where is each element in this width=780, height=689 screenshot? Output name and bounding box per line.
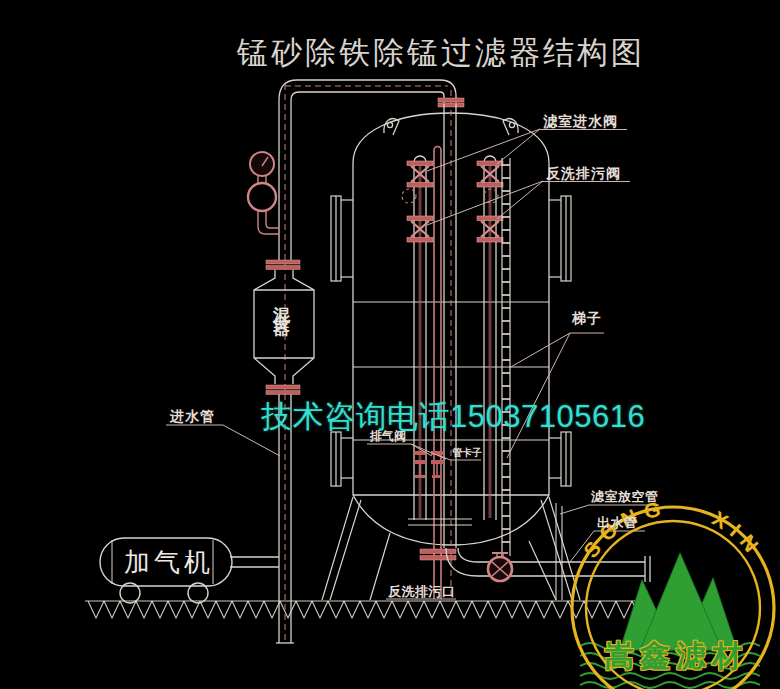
label-backwash-drain-outlet: 反洗排污口: [388, 585, 456, 599]
diagram-title: 锰砂除铁除锰过滤器结构图: [237, 36, 645, 69]
label-ladder: 梯子: [572, 311, 602, 326]
nozzle-upper-right: [549, 196, 571, 281]
ground-hatch: [88, 601, 648, 618]
backwash-valve-right: [477, 216, 503, 242]
nozzle-upper-left: [331, 196, 353, 281]
label-vent-pipe: 滤室放空管: [591, 490, 659, 504]
pressure-gauge: [248, 152, 279, 234]
bottom-outlet-pipe: [446, 548, 650, 582]
nozzle-lower-right: [549, 432, 571, 486]
logo-mountains-icon: [620, 553, 737, 650]
label-outlet-pipe: 出水管: [597, 516, 638, 530]
ground: [85, 601, 648, 618]
mixer-vessel-outline: [254, 260, 314, 395]
filter-inlet-valve-right: [477, 161, 503, 187]
label-pipe-clamp: 管卡子: [452, 448, 482, 459]
outlet-valve: [488, 553, 512, 581]
nozzle-lower-left: [331, 432, 353, 486]
label-backwash-drain-valve: 反洗排污阀: [546, 166, 621, 181]
logo-brand-name: 嵩鑫滤材: [604, 640, 748, 672]
label-inlet-pipe: 进水管: [170, 409, 215, 424]
backwash-valve-left: [407, 216, 433, 242]
left-riser-pipe: [276, 84, 294, 643]
watermark-phone: 技术咨询电话15037105616: [261, 401, 645, 434]
filter-inlet-valve-left: [407, 161, 433, 187]
top-inlet-pipe: [279, 80, 464, 598]
label-mixer-vessel: 混合器: [272, 292, 290, 313]
label-filter-inlet-valve: 滤室进水阀: [543, 114, 618, 129]
ladder: [502, 158, 510, 556]
label-aerator-machine: 加气机: [124, 549, 214, 576]
leader-lines: [166, 129, 659, 599]
